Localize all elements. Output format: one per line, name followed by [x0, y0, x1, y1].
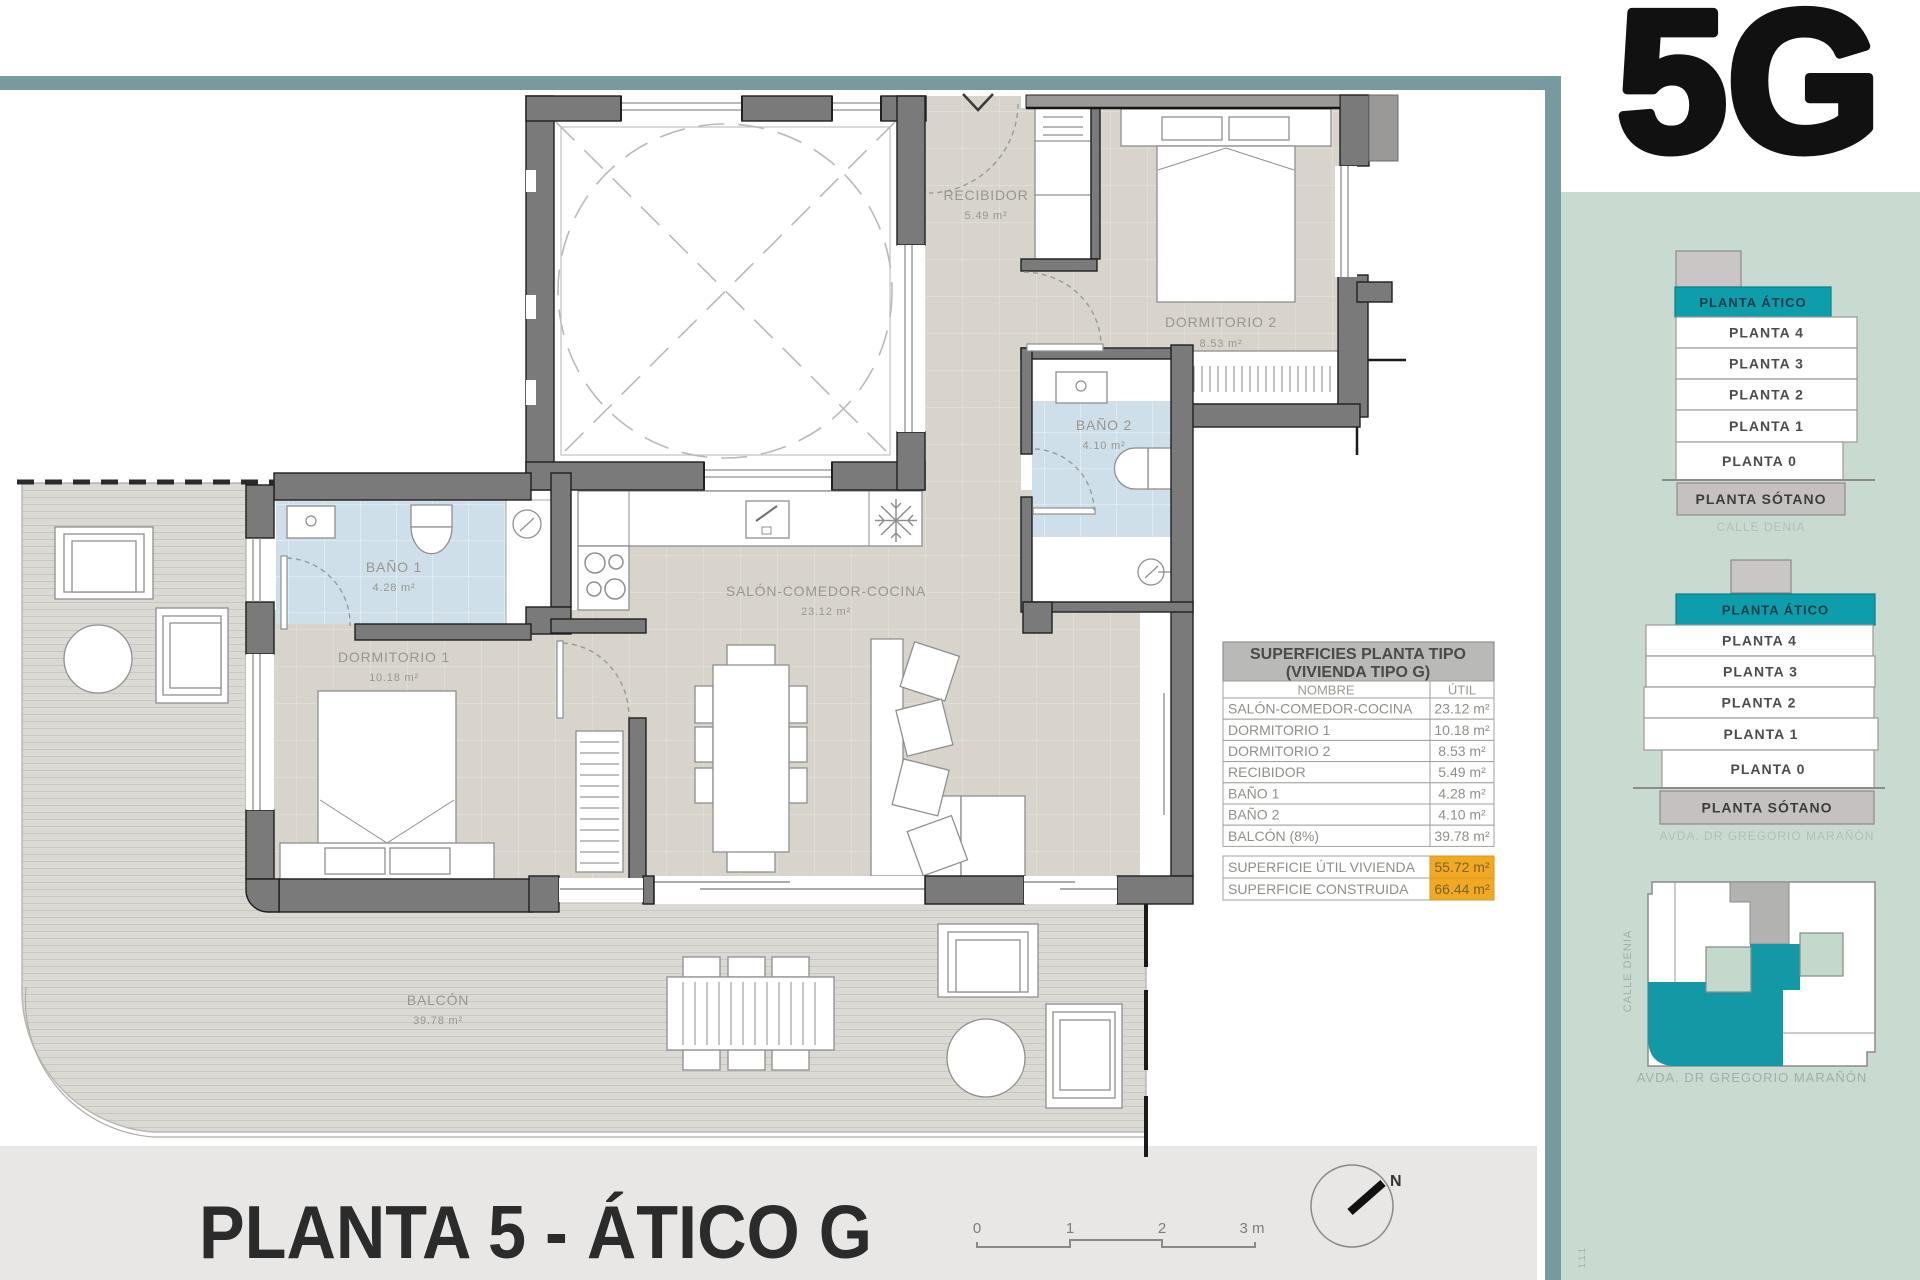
svg-text:8.53 m²: 8.53 m² [1200, 338, 1243, 350]
svg-text:PLANTA SÓTANO: PLANTA SÓTANO [1696, 490, 1827, 507]
svg-text:55.72 m²: 55.72 m² [1434, 859, 1490, 875]
svg-text:PLANTA 1: PLANTA 1 [1724, 726, 1799, 742]
svg-text:39.78 m²: 39.78 m² [1434, 828, 1490, 844]
svg-text:0: 0 [973, 1220, 981, 1237]
svg-text:DORMITORIO 1: DORMITORIO 1 [1228, 722, 1331, 738]
svg-text:RECIBIDOR: RECIBIDOR [1228, 764, 1306, 780]
svg-text:3 m: 3 m [1239, 1220, 1264, 1237]
svg-text:8.53 m²: 8.53 m² [1438, 743, 1486, 759]
svg-text:1: 1 [1066, 1220, 1074, 1237]
svg-text:RECIBIDOR: RECIBIDOR [944, 187, 1029, 203]
svg-text:BAÑO 1: BAÑO 1 [1228, 785, 1280, 801]
svg-text:AVDA. DR GREGORIO MARAÑÓN: AVDA. DR GREGORIO MARAÑÓN [1637, 1070, 1868, 1085]
svg-text:ÚTIL: ÚTIL [1448, 683, 1476, 698]
svg-text:NOMBRE: NOMBRE [1297, 683, 1354, 698]
svg-text:4.10 m²: 4.10 m² [1083, 440, 1126, 452]
svg-text:39.78 m²: 39.78 m² [413, 1015, 463, 1027]
svg-text:PLANTA 0: PLANTA 0 [1731, 761, 1806, 777]
svg-text:SUPERFICIES PLANTA TIPO: SUPERFICIES PLANTA TIPO [1250, 646, 1466, 663]
svg-text:(VIVIENDA TIPO G): (VIVIENDA TIPO G) [1286, 664, 1430, 681]
svg-text:SUPERFICIE CONSTRUIDA: SUPERFICIE CONSTRUIDA [1228, 881, 1409, 897]
svg-text:BAÑO 1: BAÑO 1 [366, 559, 422, 575]
svg-text:PLANTA 2: PLANTA 2 [1722, 695, 1797, 711]
svg-text:SALÓN-COMEDOR-COCINA: SALÓN-COMEDOR-COCINA [1228, 701, 1413, 717]
svg-text:PLANTA 2: PLANTA 2 [1729, 387, 1804, 403]
svg-text:BAÑO 2: BAÑO 2 [1076, 417, 1132, 433]
svg-text:BAÑO 2: BAÑO 2 [1228, 807, 1280, 823]
svg-text:23.12 m²: 23.12 m² [1434, 701, 1490, 717]
svg-text:1.1.1: 1.1.1 [1577, 1248, 1587, 1268]
svg-text:10.18 m²: 10.18 m² [1434, 722, 1490, 738]
svg-text:CALLE DENIA: CALLE DENIA [1622, 930, 1634, 1013]
svg-text:10.18 m²: 10.18 m² [369, 672, 419, 684]
svg-text:DORMITORIO 1: DORMITORIO 1 [338, 649, 450, 665]
svg-text:4.28 m²: 4.28 m² [1438, 785, 1486, 801]
svg-text:PLANTA SÓTANO: PLANTA SÓTANO [1702, 799, 1833, 816]
svg-text:DORMITORIO 2: DORMITORIO 2 [1228, 743, 1331, 759]
svg-text:5G: 5G [1617, 0, 1881, 193]
svg-text:2: 2 [1158, 1220, 1166, 1237]
svg-text:66.44 m²: 66.44 m² [1434, 881, 1490, 897]
svg-text:PLANTA 4: PLANTA 4 [1729, 325, 1804, 341]
svg-text:PLANTA 3: PLANTA 3 [1723, 664, 1798, 680]
svg-text:PLANTA 5 - ÁTICO G: PLANTA 5 - ÁTICO G [199, 1190, 872, 1274]
svg-text:PLANTA 3: PLANTA 3 [1729, 356, 1804, 372]
svg-text:PLANTA 1: PLANTA 1 [1729, 418, 1804, 434]
svg-text:PLANTA ÁTICO: PLANTA ÁTICO [1699, 295, 1806, 310]
svg-text:4.28 m²: 4.28 m² [373, 582, 416, 594]
svg-text:4.10 m²: 4.10 m² [1438, 807, 1486, 823]
svg-text:5.49 m²: 5.49 m² [1438, 764, 1486, 780]
svg-text:BALCÓN (8%): BALCÓN (8%) [1228, 828, 1319, 844]
svg-text:DORMITORIO 2: DORMITORIO 2 [1165, 314, 1277, 330]
svg-text:23.12 m²: 23.12 m² [801, 606, 851, 618]
svg-text:PLANTA 0: PLANTA 0 [1722, 453, 1797, 469]
svg-text:PLANTA 4: PLANTA 4 [1722, 633, 1797, 649]
svg-text:AVDA. DR GREGORIO MARAÑÓN: AVDA. DR GREGORIO MARAÑÓN [1660, 828, 1875, 843]
svg-text:SUPERFICIE ÚTIL VIVIENDA: SUPERFICIE ÚTIL VIVIENDA [1228, 859, 1416, 875]
svg-text:N: N [1390, 1173, 1402, 1190]
svg-text:BALCÓN: BALCÓN [407, 992, 469, 1008]
svg-text:SALÓN-COMEDOR-COCINA: SALÓN-COMEDOR-COCINA [726, 583, 926, 599]
svg-text:PLANTA ÁTICO: PLANTA ÁTICO [1722, 603, 1829, 618]
svg-text:CALLE DENIA: CALLE DENIA [1716, 520, 1805, 534]
svg-text:5.49 m²: 5.49 m² [965, 210, 1008, 222]
